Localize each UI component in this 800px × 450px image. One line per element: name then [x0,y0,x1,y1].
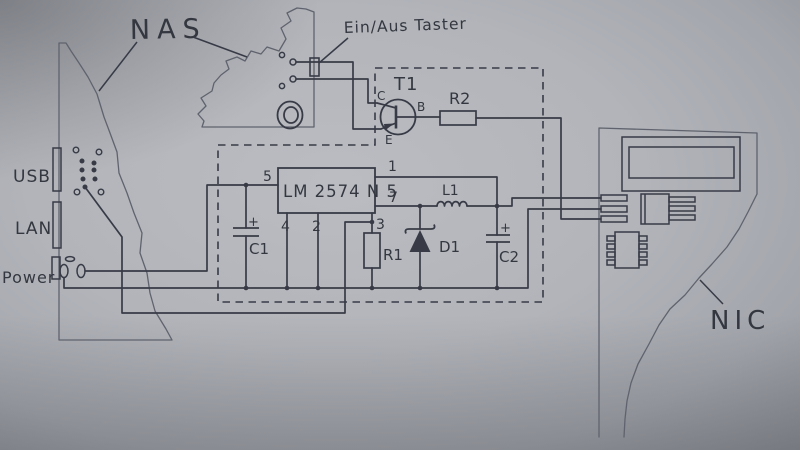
pin1-label: 1 [388,159,397,175]
usb-label: USB [13,167,51,187]
r1-label: R1 [383,246,403,264]
nas-label: NAS [130,14,207,46]
c1-plus: + [248,215,259,230]
pin4-label: 4 [281,219,290,235]
power-label: Power [2,268,55,287]
pin2-label: 2 [312,219,321,235]
c2-plus: + [500,221,511,236]
t1-label: T1 [393,74,418,95]
l1-label: L1 [442,183,459,199]
nic-label: NIC [710,306,770,336]
t1-emitter-label: E [385,133,393,147]
c1-label: C1 [249,240,269,258]
c2-label: C2 [499,248,519,266]
t1-collector-label: C [377,89,385,103]
lan-label: LAN [15,219,52,239]
d1-label: D1 [439,238,460,256]
r2-label: R2 [449,89,470,108]
regulator-label: LM 2574 N 5 [283,182,398,201]
pin5-label: 5 [263,169,272,185]
pin3-label: 3 [376,217,385,233]
pin7-label: 7 [389,190,398,206]
paper-vignette [0,0,800,450]
t1-base-label: B [417,100,425,114]
photo-of-hand-drawn-schematic: LM 2574 N 5 5 1 7 4 2 3 R1 R2 + C1 + C2 … [0,0,800,450]
schematic-drawing: LM 2574 N 5 5 1 7 4 2 3 R1 R2 + C1 + C2 … [0,0,800,450]
